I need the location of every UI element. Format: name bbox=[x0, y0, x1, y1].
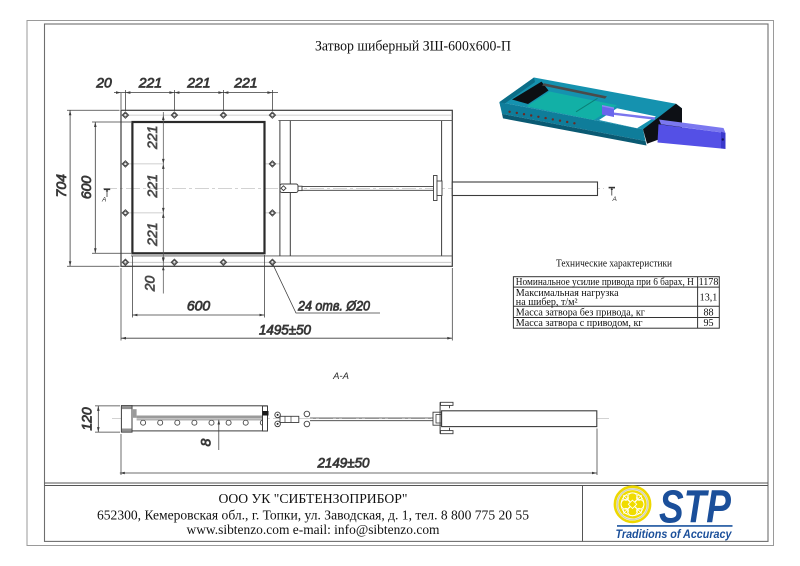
svg-text:1495±50: 1495±50 bbox=[259, 322, 312, 337]
svg-text:А: А bbox=[101, 197, 106, 204]
svg-text:221: 221 bbox=[233, 75, 257, 91]
svg-text:2149±50: 2149±50 bbox=[316, 456, 370, 471]
svg-text:А-А: А-А bbox=[332, 371, 349, 382]
svg-text:600: 600 bbox=[78, 176, 94, 200]
svg-text:24 отв. Ø20: 24 отв. Ø20 bbox=[297, 299, 370, 314]
svg-text:Номинальное усилие привода при: Номинальное усилие привода при 6 барах, … bbox=[516, 277, 694, 288]
svg-text:STP: STP bbox=[659, 481, 732, 533]
svg-text:Технические характеристики: Технические характеристики bbox=[556, 258, 672, 270]
svg-text:221: 221 bbox=[144, 174, 160, 198]
svg-text:ООО УК "СИБТЕНЗОПРИБОР": ООО УК "СИБТЕНЗОПРИБОР" bbox=[219, 492, 408, 507]
svg-text:8: 8 bbox=[198, 438, 214, 446]
svg-text:88: 88 bbox=[703, 307, 713, 318]
svg-text:20: 20 bbox=[95, 75, 112, 91]
svg-text:652300, Кемеровская обл., г. Т: 652300, Кемеровская обл., г. Топки, ул. … bbox=[97, 507, 529, 522]
svg-text:221: 221 bbox=[144, 126, 160, 150]
svg-text:95: 95 bbox=[703, 318, 713, 329]
svg-text:на шибер, т/м²: на шибер, т/м² bbox=[516, 297, 578, 308]
svg-text:www.sibtenzo.com e-mail: info@: www.sibtenzo.com e-mail: info@sibtenzo.c… bbox=[187, 522, 440, 537]
svg-text:120: 120 bbox=[79, 407, 95, 431]
svg-text:600: 600 bbox=[187, 298, 211, 314]
svg-text:704: 704 bbox=[53, 174, 69, 198]
svg-text:Traditions of Accuracy: Traditions of Accuracy bbox=[616, 528, 733, 541]
svg-text:221: 221 bbox=[186, 75, 210, 91]
svg-text:Масса затвора с приводом, кг: Масса затвора с приводом, кг bbox=[516, 318, 643, 329]
svg-text:Затвор шиберный ЗШ-600х600-П: Затвор шиберный ЗШ-600х600-П bbox=[315, 38, 511, 55]
svg-text:1178: 1178 bbox=[699, 277, 719, 288]
svg-text:221: 221 bbox=[138, 75, 162, 91]
svg-text:А: А bbox=[612, 196, 617, 203]
svg-text:13,1: 13,1 bbox=[700, 293, 718, 304]
svg-text:221: 221 bbox=[144, 223, 160, 247]
svg-text:20: 20 bbox=[142, 276, 158, 293]
svg-text:Масса затвора без привода, кг: Масса затвора без привода, кг bbox=[516, 307, 645, 318]
